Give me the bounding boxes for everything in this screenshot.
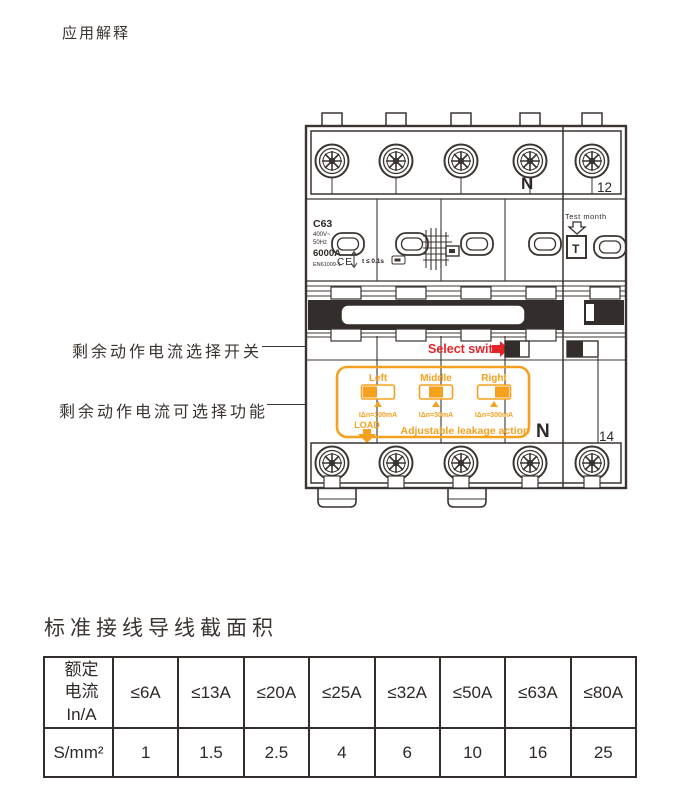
col-header: ≤80A <box>571 657 636 728</box>
col-header: ≤32A <box>375 657 440 728</box>
trip-time-label: t ≤ 0.1s <box>362 258 384 265</box>
voltage-label: 400V~ <box>313 232 331 238</box>
cell-value: 6 <box>375 728 440 777</box>
rated-current-header: 额定 电流 In/A <box>44 657 113 728</box>
pos-right-label: Right <box>481 373 507 384</box>
breaker-diagram: N 12 C63 400V~ 50Hz 6000A EN61009-1 CE t… <box>298 108 634 520</box>
table-row-rated-current: 额定 电流 In/A ≤6A ≤13A ≤20A ≤25A ≤32A ≤50A … <box>44 657 636 728</box>
val-middle-label: IΔn=30mA <box>419 412 453 419</box>
frequency-label: 50Hz <box>313 240 327 246</box>
cell-value: 16 <box>505 728 570 777</box>
cell-value: 10 <box>440 728 505 777</box>
cell-value: 1 <box>113 728 178 777</box>
col-header: ≤6A <box>113 657 178 728</box>
model-label: C63 <box>313 218 332 230</box>
cell-value: 25 <box>571 728 636 777</box>
terminal-12-label: 12 <box>597 180 612 195</box>
handle-window <box>341 305 525 325</box>
top-terminal-tabs <box>322 113 602 126</box>
col-header: ≤13A <box>178 657 243 728</box>
neutral-label-bottom: N <box>536 421 550 442</box>
load-label: LOAD <box>354 420 380 430</box>
cell-value: 1.5 <box>178 728 243 777</box>
pos-middle-label: Middle <box>420 373 452 384</box>
slider-middle-icon <box>420 385 453 399</box>
cross-section-header: S/mm² <box>44 728 113 777</box>
din-clip-right <box>448 488 486 507</box>
val-left-label: IΔn=100mA <box>359 412 397 419</box>
cell-value: 2.5 <box>244 728 309 777</box>
col-header: ≤20A <box>244 657 309 728</box>
din-clip-left <box>318 488 356 507</box>
pos-left-label: Left <box>369 373 388 384</box>
module-handle <box>584 300 624 325</box>
page-title: 应用解释 <box>62 22 130 43</box>
neutral-label-top: N <box>521 174 533 193</box>
test-month-label: Test month <box>565 212 607 221</box>
test-button-label: T <box>572 242 580 256</box>
manual-page: 应用解释 剩余动作电流选择开关 剩余动作电流可选择功能 <box>0 0 680 803</box>
ce-mark: CE <box>337 257 353 268</box>
table-row-cross-section: S/mm² 1 1.5 2.5 4 6 10 16 25 <box>44 728 636 777</box>
module-slider <box>567 341 598 357</box>
terminal-14-label: 14 <box>599 429 615 444</box>
select-switch-slider <box>505 341 529 357</box>
col-header: ≤63A <box>505 657 570 728</box>
panel-caption: Adjustable leakage action <box>401 425 530 437</box>
col-header: ≤25A <box>309 657 374 728</box>
callout-select-switch: 剩余动作电流选择开关 <box>58 338 262 362</box>
wiring-table-title: 标准接线导线截面积 <box>44 612 278 642</box>
col-header: ≤50A <box>440 657 505 728</box>
slider-right-icon <box>478 385 511 399</box>
slider-left-icon <box>362 385 395 399</box>
val-right-label: IΔn=300mA <box>475 412 513 419</box>
cell-value: 4 <box>309 728 374 777</box>
wiring-cross-section-table: 额定 电流 In/A ≤6A ≤13A ≤20A ≤25A ≤32A ≤50A … <box>43 656 637 778</box>
callout-selectable-function: 剩余动作电流可选择功能 <box>50 398 268 422</box>
